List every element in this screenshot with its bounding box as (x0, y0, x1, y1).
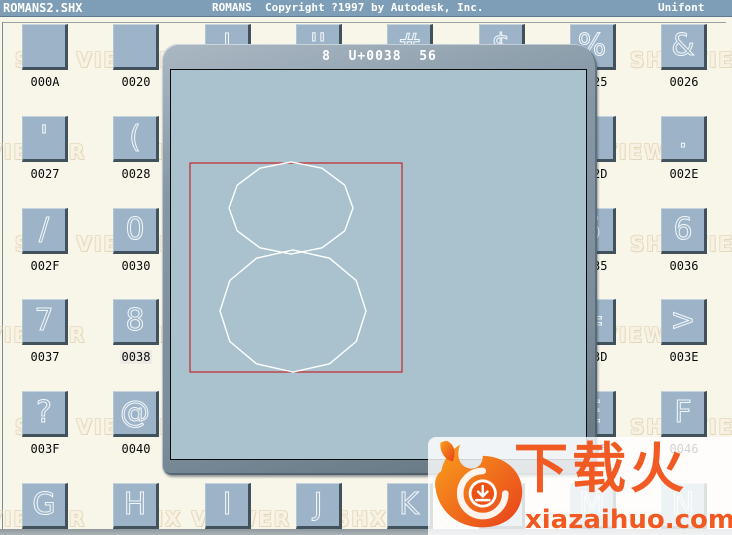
glyph-stroke-path (229, 162, 353, 254)
popup-title[interactable]: 8 U+0038 56 (162, 49, 597, 64)
glyph-code-label: 0037 (15, 350, 75, 364)
glyph-code-label: 0027 (15, 167, 75, 181)
glyph-cell-000A[interactable] (22, 24, 68, 70)
glyph-cell-0027[interactable]: ' (22, 116, 68, 162)
glyph-bounds-box (190, 163, 402, 372)
glyph-code-label: 0028 (106, 167, 166, 181)
glyph-preview: F (662, 392, 704, 434)
glyph-cell-0048[interactable]: H (113, 483, 159, 529)
glyph-cell-003F[interactable]: ? (22, 391, 68, 437)
download-flame-icon (432, 439, 526, 533)
glyph-cell-002E[interactable]: . (661, 116, 707, 162)
glyph-code-label: 0036 (654, 259, 714, 273)
glyph-cell-002F[interactable]: / (22, 208, 68, 254)
glyph-code-label: 0030 (106, 259, 166, 273)
glyph-preview: ' (23, 117, 65, 159)
glyph-preview: 7 (23, 300, 65, 342)
glyph-cell-0047[interactable]: G (22, 483, 68, 529)
glyph-code-label: 0020 (106, 75, 166, 89)
glyph-preview: > (662, 300, 704, 342)
glyph-cell-0040[interactable]: @ (113, 391, 159, 437)
glyph-render-canvas (170, 69, 587, 460)
glyph-cell-004A[interactable]: J (296, 483, 342, 529)
glyph-cell-0026[interactable]: & (661, 24, 707, 70)
glyph-code-label: 0026 (654, 75, 714, 89)
glyph-code-label: 003E (654, 350, 714, 364)
glyph-outline-drawing (171, 70, 586, 459)
glyph-preview (23, 25, 65, 67)
glyph-cell-0038[interactable]: 8 (113, 299, 159, 345)
glyph-preview (114, 25, 156, 67)
font-file-name: ROMANS2.SHX (3, 1, 82, 15)
glyph-preview-popup[interactable]: 8 U+0038 56 (162, 44, 597, 475)
font-copyright: ROMANS Copyright ?1997 by Autodesk, Inc. (212, 1, 484, 14)
glyph-code-label: 002F (15, 259, 75, 273)
glyph-cell-0020[interactable] (113, 24, 159, 70)
glyph-preview: / (23, 209, 65, 251)
glyph-preview: 0 (114, 209, 156, 251)
glyph-cell-0036[interactable]: 6 (661, 208, 707, 254)
glyph-code-label: 003F (15, 442, 75, 456)
glyph-cell-0046[interactable]: F (661, 391, 707, 437)
glyph-preview: & (662, 25, 704, 67)
glyph-cell-0037[interactable]: 7 (22, 299, 68, 345)
xiazaihuo-watermark[interactable]: 下载火 xiazaihuo.com (428, 437, 732, 535)
glyph-cell-004B[interactable]: K (387, 483, 433, 529)
glyph-code-label: 000A (15, 75, 75, 89)
glyph-preview: I (206, 484, 248, 526)
glyph-preview: ? (23, 392, 65, 434)
glyph-preview: K (388, 484, 430, 526)
title-bar: ROMANS2.SHX ROMANS Copyright ?1997 by Au… (0, 0, 732, 17)
glyph-stroke-path (220, 250, 366, 372)
glyph-preview: G (23, 484, 65, 526)
encoding-mode-label[interactable]: Unifont (658, 1, 704, 14)
shx-font-viewer-window: ROMANS2.SHX ROMANS Copyright ?1997 by Au… (0, 0, 732, 535)
site-domain: xiazaihuo.com (525, 505, 732, 535)
glyph-preview: 6 (662, 209, 704, 251)
glyph-preview: ( (114, 117, 156, 159)
glyph-cell-0030[interactable]: 0 (113, 208, 159, 254)
glyph-code-label: 002E (654, 167, 714, 181)
glyph-cell-003E[interactable]: > (661, 299, 707, 345)
glyph-preview: H (114, 484, 156, 526)
glyph-code-label: 0040 (106, 442, 166, 456)
glyph-preview: J (297, 484, 339, 526)
glyph-preview: 8 (114, 300, 156, 342)
glyph-cell-0049[interactable]: I (205, 483, 251, 529)
glyph-preview: . (662, 117, 704, 159)
glyph-cell-0028[interactable]: ( (113, 116, 159, 162)
site-name: 下载火 (514, 439, 688, 499)
glyph-code-label: 0038 (106, 350, 166, 364)
glyph-preview: @ (114, 392, 156, 434)
